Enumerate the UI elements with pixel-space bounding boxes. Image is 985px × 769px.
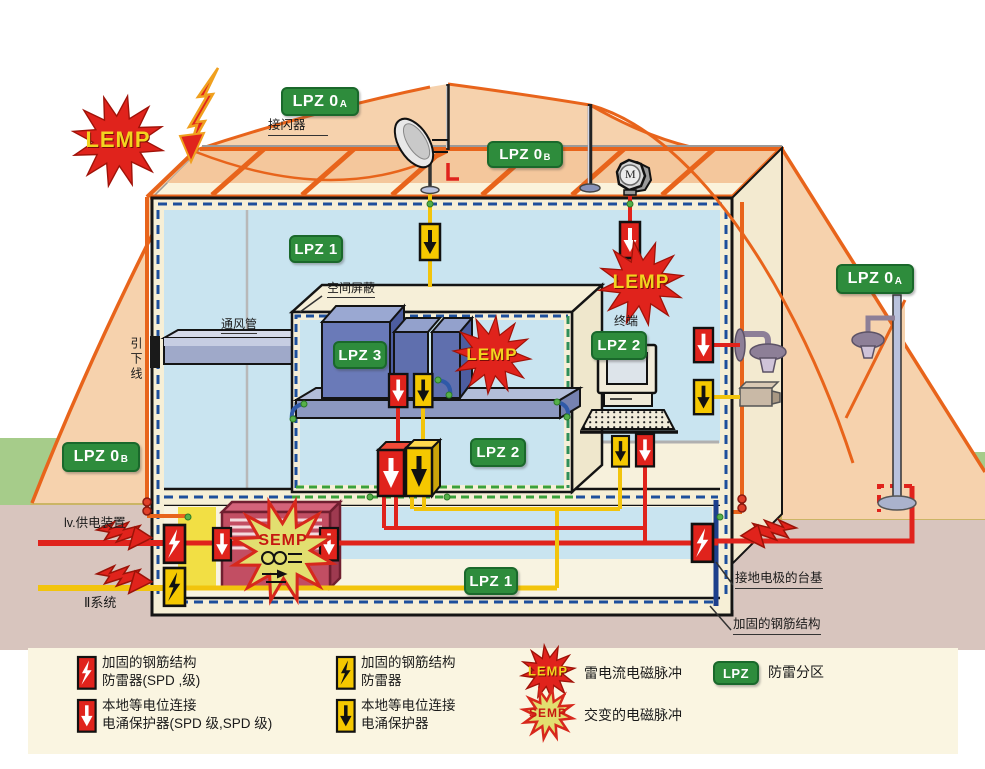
badge-lpz1-lower: LPZ 1 <box>464 567 518 595</box>
lemp-star-topleft-label: LEMP <box>85 127 150 153</box>
legend-line: 本地等电位连接 <box>361 697 456 715</box>
lamp-body <box>760 358 776 372</box>
camera-lens <box>772 391 780 404</box>
reinforced-steel-label: 加固的钢筋结构 <box>733 617 821 635</box>
air-terminal-label: 接闪器 <box>268 118 328 136</box>
badge-lpz2-terminal: LPZ 2 <box>591 331 647 360</box>
badge-lpz2-innerroom: LPZ 2 <box>470 438 526 467</box>
transformer-top <box>222 502 340 512</box>
legend-semp-text: 交变的电磁脉冲 <box>584 706 682 725</box>
spd-terminal-red <box>636 434 654 466</box>
duct-front-highlight <box>164 338 296 346</box>
keyboard <box>582 410 674 429</box>
legend-lpz-badge: LPZ <box>713 661 759 685</box>
legend-item-red-arrow: 本地等电位连接 电涌保护器(SPD 级,SPD 级) <box>102 697 272 733</box>
spd-transformer-left <box>213 528 231 560</box>
camera-box <box>740 382 780 406</box>
spd-cabinet-red <box>389 374 407 407</box>
badge-lpz0a-top: LPZ 0A <box>281 87 359 116</box>
lemp-star-innerroom-label: LEMP <box>466 345 517 365</box>
legend-lemp-text: 雷电流电磁脉冲 <box>584 664 682 683</box>
legend-lpz-text: 防雷分区 <box>768 663 824 682</box>
motor-label: M <box>625 167 636 182</box>
post-base <box>878 496 916 510</box>
badge-lpz0a-right: LPZ 0A <box>836 264 914 294</box>
legend-icon-yellow-lightning <box>337 657 355 689</box>
camera-top <box>740 382 778 388</box>
legend-icon-yellow-arrow <box>337 700 355 732</box>
camera-body <box>740 388 772 406</box>
vent-duct-label: 通风管 <box>221 317 257 334</box>
down-conductor-label: 引下线 <box>128 337 143 382</box>
legend-line: 电涌保护器(SPD 级,SPD 级) <box>102 715 272 733</box>
post-pole <box>893 295 901 502</box>
legend-lemp-label: LEMP <box>528 664 568 679</box>
duct-wall-hole <box>150 336 160 368</box>
legend-line: 防雷器(SPD ,级) <box>102 672 200 690</box>
zone-right-fill <box>782 149 985 519</box>
spd-earth-red-lightning <box>692 524 713 562</box>
legend-line: 电涌保护器 <box>361 715 456 733</box>
spd-box-yellow-3d <box>406 440 440 496</box>
motor-base <box>624 190 636 195</box>
legend-line: 加固的钢筋结构 <box>361 654 456 672</box>
semp-star-label: SEMP <box>258 532 307 550</box>
badge-lpz1-upper: LPZ 1 <box>289 235 343 263</box>
badge-lpz0b-left: LPZ 0B <box>62 442 140 472</box>
pole-base <box>580 184 600 192</box>
legend-icon-red-lightning <box>78 657 96 689</box>
legend-item-yellow-arrow: 本地等电位连接 电涌保护器 <box>361 697 456 733</box>
cabinet3-front <box>432 332 460 398</box>
spd-wall-yellow <box>694 380 713 414</box>
system-ii-label: Ⅱ系统 <box>84 595 116 611</box>
spd-cabinet-yellow <box>414 374 432 407</box>
spd-entry-red-lightning <box>164 525 185 563</box>
legend-line: 本地等电位连接 <box>102 697 272 715</box>
terminal-label: 终端 <box>614 314 638 329</box>
legend-semp-label: SEMP <box>529 706 567 720</box>
lemp-star-right-label: LEMP <box>613 272 670 294</box>
legend-icon-red-arrow <box>78 700 96 732</box>
legend-item-red-lightning: 加固的钢筋结构 防雷器(SPD ,级) <box>102 654 200 690</box>
lv-supply-label: lv.供电装置 <box>64 516 126 532</box>
spd-terminal-yellow <box>612 436 629 467</box>
badge-lpz0b-roof: LPZ 0B <box>487 141 563 168</box>
spd-wall-red <box>694 328 713 362</box>
legend-item-yellow-lightning: 加固的钢筋结构 防雷器 <box>361 654 456 690</box>
badge-lpz3: LPZ 3 <box>333 341 387 369</box>
spd-satellite-yellow <box>420 224 440 260</box>
spatial-shield-label: 空间屏蔽 <box>327 281 375 298</box>
legend-line: 防雷器 <box>361 672 456 690</box>
foundation-electrode-label: 接地电极的台基 <box>735 571 823 589</box>
post-lamp-body <box>861 346 875 358</box>
spd-entry-yellow-lightning <box>164 568 185 606</box>
dish-base <box>421 187 439 194</box>
legend-line: 加固的钢筋结构 <box>102 654 200 672</box>
lpz-lightning-protection-diagram: LPZ 0A LPZ 0B LPZ 0A LPZ 0B LPZ 1 LPZ 1 … <box>0 0 985 769</box>
